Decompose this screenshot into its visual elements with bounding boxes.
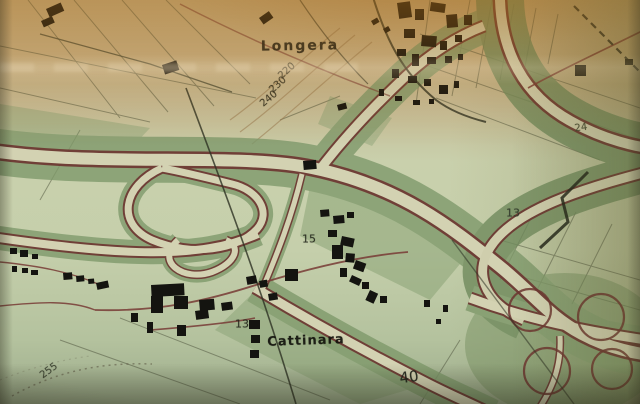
parcel-number-24: 24 bbox=[574, 122, 588, 135]
place-label-cattinara: Cattinara bbox=[267, 332, 345, 350]
road-number-40: 40 bbox=[398, 367, 419, 387]
place-label-longera: Longera bbox=[261, 37, 340, 54]
map-labels: Longera Cattinara 220 230 240 255 15 13 … bbox=[0, 0, 640, 404]
parcel-number-15: 15 bbox=[302, 233, 316, 246]
parcel-number-13-east: 13 bbox=[506, 207, 520, 220]
parcel-number-13-west: 13 bbox=[235, 318, 249, 331]
map-photo: Longera Cattinara 220 230 240 255 15 13 … bbox=[0, 0, 640, 404]
elevation-label-255: 255 bbox=[38, 361, 60, 381]
